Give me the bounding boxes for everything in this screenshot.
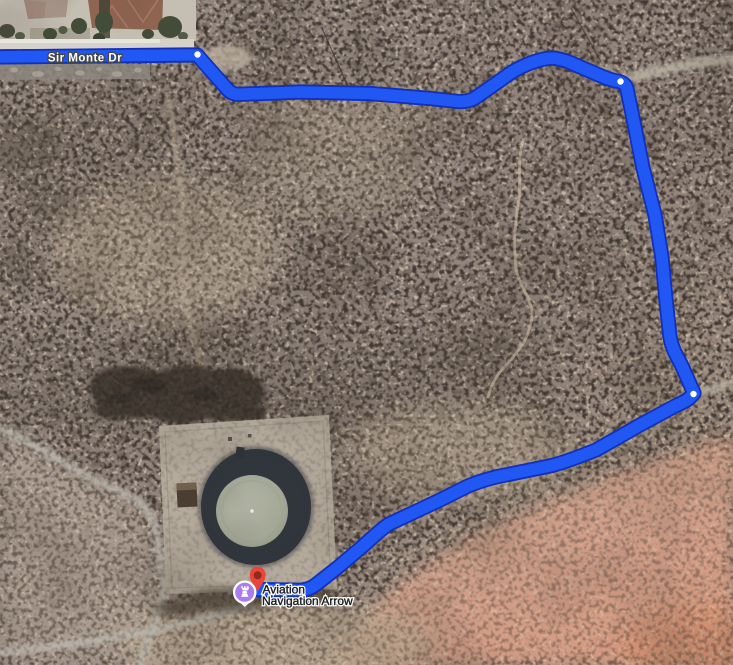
svg-text:Navigation Arrow: Navigation Arrow: [262, 594, 353, 608]
svg-text:Sir Monte Dr: Sir Monte Dr: [48, 53, 122, 65]
